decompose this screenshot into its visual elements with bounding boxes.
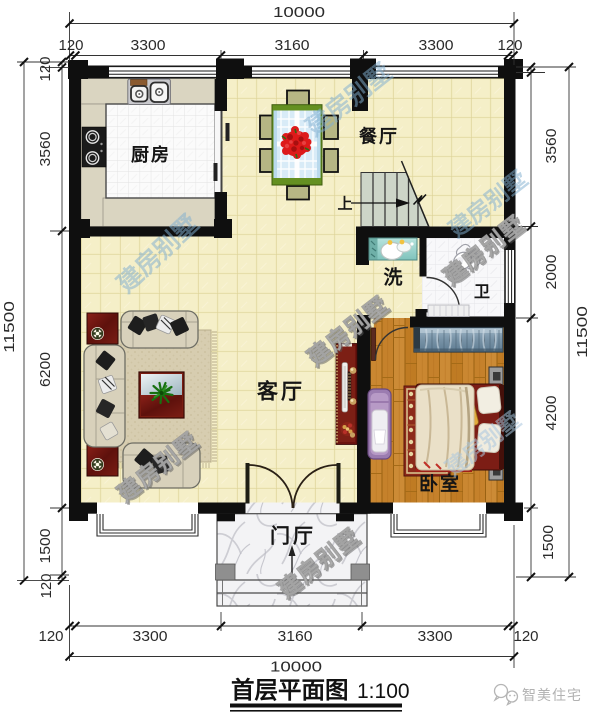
svg-text:3560: 3560 (543, 129, 560, 164)
svg-text:3300: 3300 (133, 628, 168, 645)
svg-text:2000: 2000 (543, 255, 560, 290)
svg-text:门厅: 门厅 (270, 524, 316, 548)
svg-text:卫: 卫 (474, 284, 490, 301)
svg-text:上: 上 (337, 196, 352, 213)
svg-text:3300: 3300 (419, 37, 454, 54)
svg-text:120: 120 (39, 628, 64, 645)
svg-text:客厅: 客厅 (257, 380, 305, 404)
svg-text:11500: 11500 (574, 306, 591, 358)
svg-text:11500: 11500 (1, 301, 18, 353)
svg-text:120: 120 (37, 57, 54, 82)
svg-text:1500: 1500 (540, 525, 557, 560)
svg-text:餐厅: 餐厅 (358, 126, 399, 147)
svg-text:智美住宅: 智美住宅 (522, 687, 582, 703)
svg-text:3300: 3300 (418, 628, 453, 645)
svg-text:3160: 3160 (278, 628, 313, 645)
svg-text:3560: 3560 (37, 132, 54, 167)
svg-text:首层平面图: 首层平面图 (231, 676, 349, 703)
svg-text:120: 120 (498, 37, 523, 54)
svg-text:120: 120 (59, 37, 84, 54)
svg-text:3300: 3300 (131, 37, 166, 54)
svg-text:1500: 1500 (37, 529, 54, 564)
svg-text:3160: 3160 (275, 37, 310, 54)
svg-text:6200: 6200 (37, 352, 54, 387)
svg-text:1:100: 1:100 (357, 680, 410, 703)
svg-text:洗: 洗 (383, 266, 402, 289)
svg-text:10000: 10000 (273, 4, 325, 21)
svg-text:120: 120 (38, 574, 55, 599)
svg-text:120: 120 (514, 628, 539, 645)
svg-text:10000: 10000 (270, 659, 322, 676)
svg-text:厨房: 厨房 (131, 144, 171, 165)
svg-text:4200: 4200 (543, 396, 560, 431)
